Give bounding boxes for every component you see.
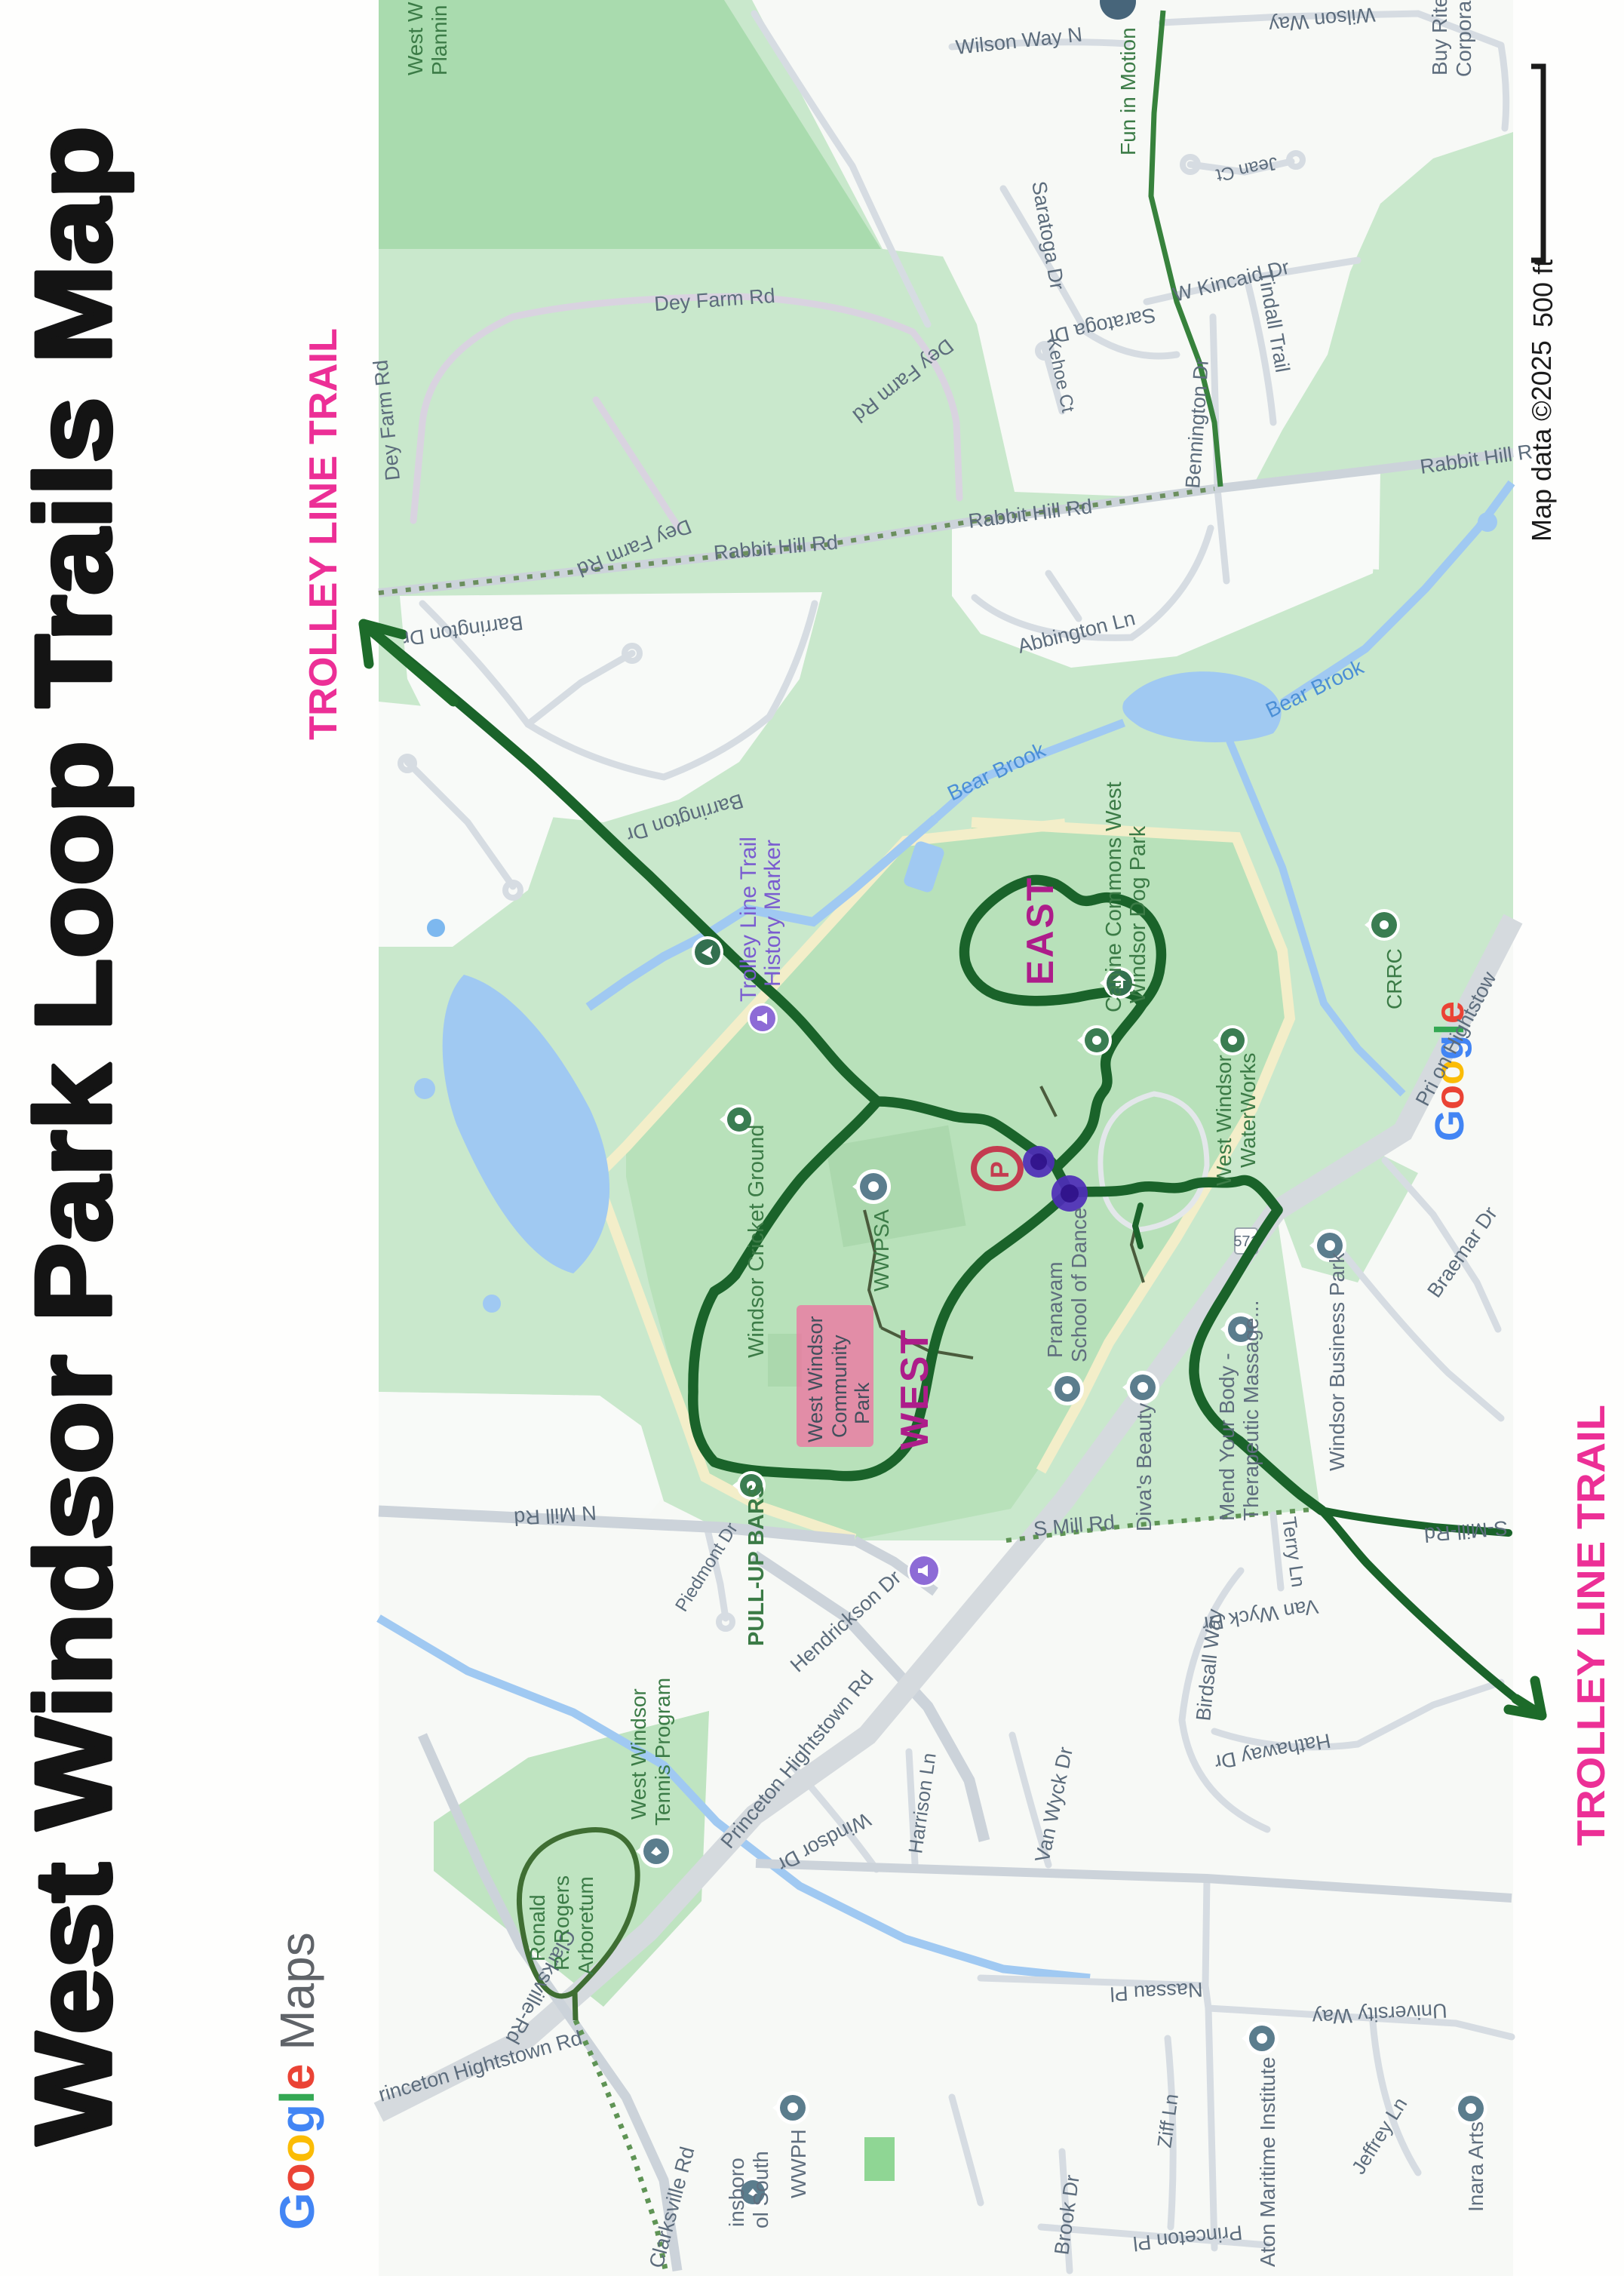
svg-text:PULL-UP BARS: PULL-UP BARS — [744, 1484, 769, 1646]
svg-text:Community: Community — [828, 1335, 851, 1438]
svg-text:West Windsor Park Loop Trails: West Windsor Park Loop Trails Map — [14, 126, 134, 2145]
svg-text:R. Rogers: R. Rogers — [550, 1875, 573, 1970]
svg-text:WaterWorks: WaterWorks — [1236, 1053, 1260, 1168]
svg-text:Pranavam: Pranavam — [1043, 1261, 1067, 1358]
svg-text:Canine Commons West: Canine Commons West — [1102, 782, 1126, 1012]
svg-text:West Windsor: West Windsor — [804, 1316, 827, 1442]
svg-text:Map data ©2025: Map data ©2025 — [1526, 340, 1557, 542]
svg-text:Arboretum: Arboretum — [574, 1876, 597, 1975]
svg-text:P: P — [986, 1161, 1015, 1178]
svg-text:Fun in Motion: Fun in Motion — [1116, 27, 1140, 155]
svg-text:CRRC: CRRC — [1383, 948, 1406, 1009]
svg-text:TROLLEY LINE TRAIL: TROLLEY LINE TRAIL — [302, 328, 345, 740]
svg-text:Buy Rite: Buy Rite — [1428, 0, 1451, 75]
svg-text:West W: West W — [404, 2, 427, 75]
svg-text:ol South: ol South — [749, 2151, 772, 2228]
svg-text:TROLLEY LINE TRAIL: TROLLEY LINE TRAIL — [1570, 1405, 1613, 1846]
svg-text:EAST: EAST — [1019, 876, 1061, 985]
svg-text:West Windsor: West Windsor — [627, 1688, 650, 1820]
svg-text:Mend Your Body -: Mend Your Body - — [1215, 1353, 1239, 1521]
svg-text:Google Maps: Google Maps — [270, 1932, 324, 2230]
svg-text:Inara Arts: Inara Arts — [1464, 2121, 1487, 2212]
svg-text:Diva's Beauty: Diva's Beauty — [1132, 1403, 1156, 1531]
svg-text:insboro: insboro — [725, 2158, 748, 2227]
svg-text:WWPH: WWPH — [787, 2129, 810, 2198]
svg-text:West Windsor: West Windsor — [1212, 1055, 1236, 1186]
svg-text:Tennis Program: Tennis Program — [651, 1678, 674, 1826]
svg-text:Windsor Business Park: Windsor Business Park — [1325, 1252, 1349, 1471]
svg-text:School of Dance: School of Dance — [1067, 1208, 1091, 1362]
svg-text:WEST: WEST — [893, 1328, 937, 1450]
svg-text:500 ft: 500 ft — [1527, 260, 1558, 327]
svg-text:Plannin: Plannin — [428, 5, 451, 75]
svg-text:History Marker: History Marker — [760, 840, 785, 987]
svg-text:Trolley Line Trail: Trolley Line Trail — [736, 837, 761, 1002]
svg-text:Windsor Dog Park: Windsor Dog Park — [1126, 825, 1150, 1003]
svg-text:Therapeutic Massage...: Therapeutic Massage... — [1239, 1300, 1263, 1521]
svg-text:Ronald: Ronald — [526, 1894, 549, 1961]
svg-text:Corpora: Corpora — [1452, 0, 1475, 77]
svg-text:Aton Maritime Institute: Aton Maritime Institute — [1256, 2056, 1279, 2267]
svg-text:WWPSA: WWPSA — [870, 1209, 893, 1292]
svg-text:Windsor Cricket Ground: Windsor Cricket Ground — [744, 1125, 769, 1358]
svg-text:Park: Park — [851, 1382, 873, 1424]
